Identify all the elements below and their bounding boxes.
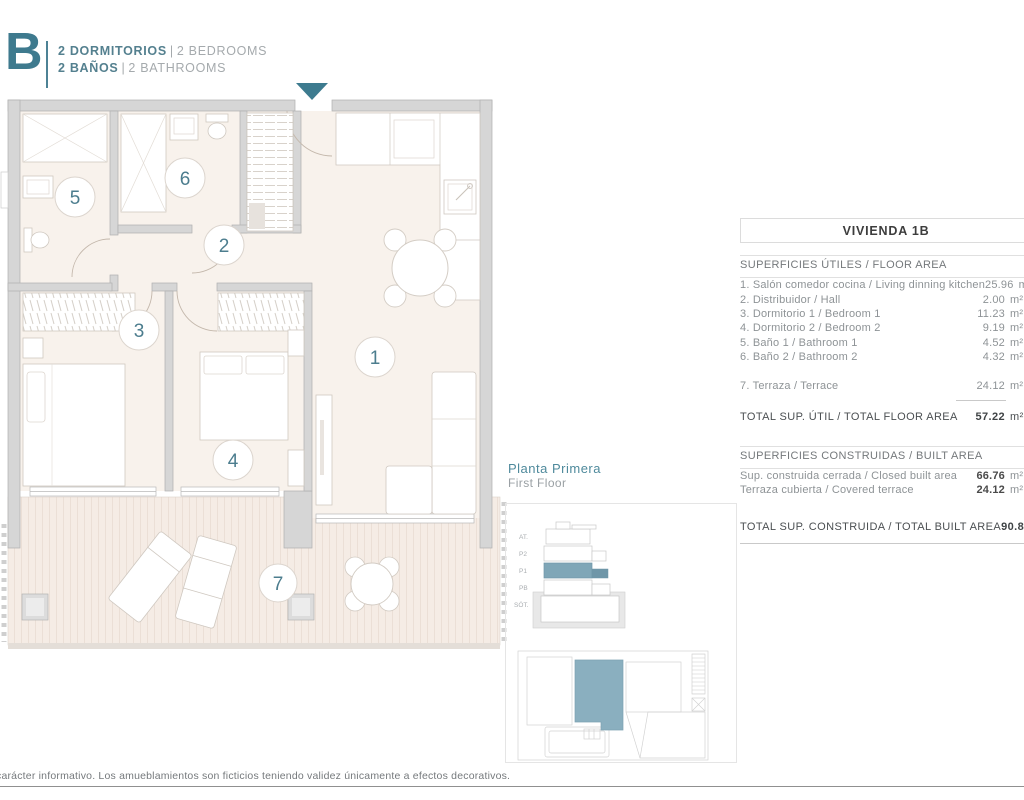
row-label: 4. Dormitorio 2 / Bedroom 2 — [740, 322, 963, 334]
terrace-edge — [8, 643, 500, 649]
row-value: 9.19 — [963, 322, 1005, 334]
floor-location-label: Planta Primera First Floor — [508, 461, 601, 491]
row-unit: m² — [1005, 294, 1024, 306]
row-unit: m² — [1005, 308, 1024, 320]
disclaimer-text: carácter informativo. Los amueblamientos… — [0, 770, 510, 782]
total-value: 90.88 — [1001, 521, 1024, 533]
row-label: 3. Dormitorio 1 / Bedroom 1 — [740, 308, 963, 320]
kitchen-sink — [444, 180, 476, 214]
total-built-area-row: TOTAL SUP. CONSTRUIDA / TOTAL BUILT AREA… — [740, 518, 1024, 536]
bedrooms-es: 2 DORMITORIOS — [58, 44, 167, 58]
row-value: 66.76 — [963, 470, 1005, 482]
terrace-table-set — [345, 557, 399, 611]
svg-text:6: 6 — [180, 169, 191, 190]
hall-closet — [247, 113, 293, 231]
total-value: 57.22 — [963, 411, 1005, 423]
unit-title-box: VIVIENDA 1B — [740, 218, 1024, 243]
total-label: TOTAL SUP. ÚTIL / TOTAL FLOOR AREA — [740, 411, 963, 423]
row-label: 5. Baño 1 / Bathroom 1 — [740, 337, 963, 349]
unit-letter: B — [5, 26, 43, 78]
row-label: 7. Terraza / Terrace — [740, 380, 963, 392]
total-label: TOTAL SUP. CONSTRUIDA / TOTAL BUILT AREA — [740, 521, 1001, 533]
header-bedrooms-line: 2 DORMITORIOS|2 BEDROOMS — [58, 43, 267, 60]
room-label-3: 3 — [119, 310, 159, 350]
separator: | — [118, 61, 128, 75]
location-diagram-box — [505, 503, 737, 763]
row-value: 2.00 — [963, 294, 1005, 306]
room-label-1: 1 — [355, 337, 395, 377]
table-row: Sup. construida cerrada / Closed built a… — [740, 469, 1024, 483]
row-value: 4.52 — [963, 337, 1005, 349]
built-area-header: SUPERFICIES CONSTRUIDAS / BUILT AREA — [740, 447, 1024, 468]
table-row-terrace: 7. Terraza / Terrace 24.12 m² — [740, 378, 1024, 392]
total-floor-area-row: TOTAL SUP. ÚTIL / TOTAL FLOOR AREA 57.22… — [740, 408, 1024, 426]
terrace-pillar — [288, 594, 314, 620]
terrace-pillar — [22, 594, 48, 620]
row-value: 4.32 — [963, 351, 1005, 363]
table-row: 2. Distribuidor / Hall 2.00 m² — [740, 292, 1024, 306]
footer-divider — [0, 786, 1024, 787]
header-divider — [46, 41, 48, 88]
svg-text:7: 7 — [273, 574, 284, 595]
header-bathrooms-line: 2 BAÑOS|2 BATHROOMS — [58, 60, 267, 77]
table-row: 4. Dormitorio 2 / Bedroom 2 9.19 m² — [740, 321, 1024, 335]
bedrooms-en: 2 BEDROOMS — [177, 44, 267, 58]
row-unit: m² — [1005, 484, 1024, 496]
svg-text:5: 5 — [70, 188, 81, 209]
unit-title: VIVIENDA 1B — [843, 224, 930, 238]
room-label-2: 2 — [204, 225, 244, 265]
svg-text:2: 2 — [219, 236, 230, 257]
row-unit: m² — [1005, 411, 1024, 423]
bathrooms-en: 2 BATHROOMS — [128, 61, 226, 75]
table-row: Terraza cubierta / Covered terrace 24.12… — [740, 483, 1024, 497]
row-label: Sup. construida cerrada / Closed built a… — [740, 470, 963, 482]
floor-name-en: First Floor — [508, 476, 601, 491]
row-unit: m² — [1005, 351, 1024, 363]
row-value: 11.23 — [963, 308, 1005, 320]
floor-area-header: SUPERFICIES ÚTILES / FLOOR AREA — [740, 256, 1024, 277]
room-label-5: 5 — [55, 177, 95, 217]
row-unit: m² — [1014, 279, 1024, 291]
svg-text:3: 3 — [134, 321, 145, 342]
table-row: 1. Salón comedor cocina / Living dinning… — [740, 278, 1024, 292]
row-label: 1. Salón comedor cocina / Living dinning… — [740, 279, 985, 291]
exterior-unit — [1, 172, 8, 208]
row-label: 6. Baño 2 / Bathroom 2 — [740, 351, 963, 363]
row-label: Terraza cubierta / Covered terrace — [740, 484, 963, 496]
table-row: 3. Dormitorio 1 / Bedroom 1 11.23 m² — [740, 307, 1024, 321]
svg-text:4: 4 — [228, 451, 239, 472]
row-unit: m² — [1005, 337, 1024, 349]
row-unit: m² — [1005, 322, 1024, 334]
bathrooms-es: 2 BAÑOS — [58, 61, 118, 75]
separator: | — [167, 44, 177, 58]
row-value: 25.96 — [985, 279, 1014, 291]
dining-table-set — [384, 229, 456, 307]
room-label-7: 7 — [259, 564, 297, 602]
entrance-arrow-icon — [296, 83, 328, 100]
svg-text:1: 1 — [370, 348, 381, 369]
floor-name-es: Planta Primera — [508, 461, 601, 476]
room-label-4: 4 — [213, 440, 253, 480]
row-label: 2. Distribuidor / Hall — [740, 294, 963, 306]
tv-unit — [316, 395, 332, 505]
table-row: 5. Baño 1 / Bathroom 1 4.52 m² — [740, 336, 1024, 350]
room-label-6: 6 — [165, 158, 205, 198]
divider — [740, 543, 1024, 544]
row-value: 24.12 — [963, 484, 1005, 496]
table-row: 6. Baño 2 / Bathroom 2 4.32 m² — [740, 350, 1024, 364]
bedroom1-furniture — [23, 293, 135, 486]
row-unit: m² — [1005, 380, 1024, 392]
row-unit: m² — [1005, 470, 1024, 482]
area-table: VIVIENDA 1B SUPERFICIES ÚTILES / FLOOR A… — [740, 218, 1024, 544]
row-value: 24.12 — [963, 380, 1005, 392]
header-subtitle: 2 DORMITORIOS|2 BEDROOMS 2 BAÑOS|2 BATHR… — [58, 43, 267, 77]
